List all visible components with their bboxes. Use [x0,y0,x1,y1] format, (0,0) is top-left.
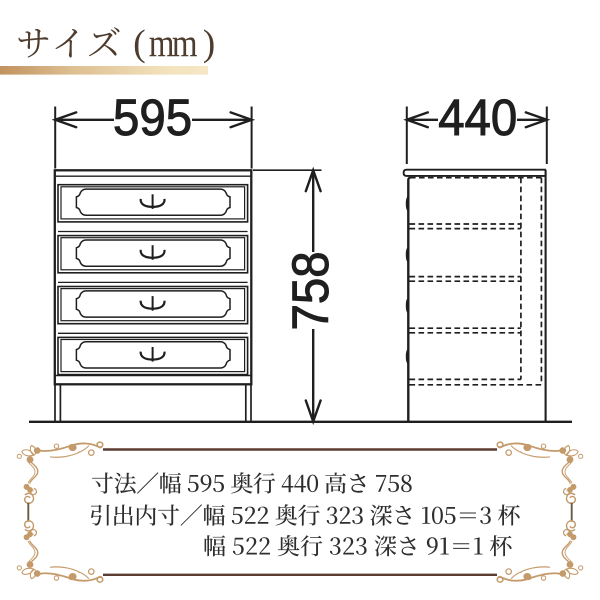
svg-text:595: 595 [113,89,192,146]
svg-text:758: 758 [282,251,339,330]
svg-text:440: 440 [438,89,517,146]
